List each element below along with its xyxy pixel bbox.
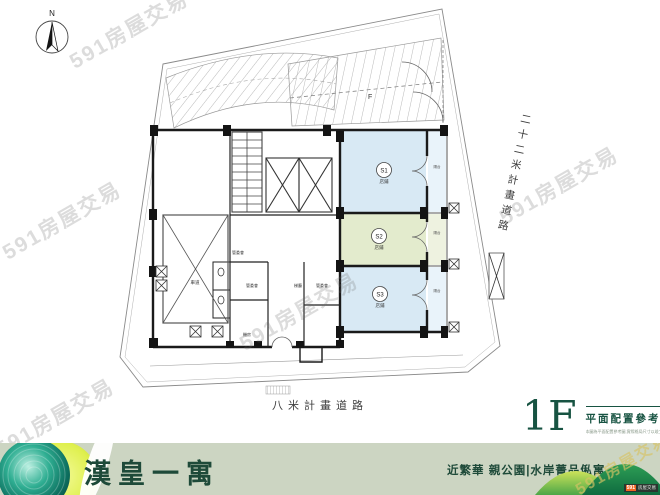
plan-title: 平面配置參考圖 <box>586 411 660 426</box>
room-label: 管委會 <box>246 282 258 288</box>
unit-s2-id: S2 <box>375 235 383 241</box>
balcony-s2 <box>428 214 446 265</box>
room-label: 管委會 <box>316 282 328 288</box>
equipment-boxes <box>156 203 504 337</box>
ramp-floor-marker: F <box>368 94 372 101</box>
compass-needle-icon <box>46 22 52 51</box>
driveway-label: 車道 <box>191 279 200 286</box>
balcony-label: 陽台 <box>434 164 442 169</box>
floorplan-page: 591房屋交易 591房屋交易 591房屋交易 591房屋交易 591房屋交易 … <box>0 0 660 495</box>
elevators <box>266 158 332 212</box>
entrance-steps <box>266 386 290 394</box>
badge-591: 591 房屋交易 <box>624 484 658 492</box>
floor-number: 1F <box>522 395 577 437</box>
title-block: 1F 平面配置參考圖 本圖為平面配置參考圖,實際格局尺寸以竣工圖及現場為準 <box>522 395 660 437</box>
unit-s1-type: 店鋪 <box>380 178 389 185</box>
room-label: 機房 <box>243 331 251 337</box>
road-label-bottom: 八米計畫道路 <box>240 397 400 413</box>
room-label: 梯廳 <box>294 282 302 288</box>
compass: N <box>36 9 68 53</box>
badge-591-chip: 591 <box>626 485 636 491</box>
straight-ramp: F <box>288 38 444 126</box>
balcony-label: 陽台 <box>434 230 442 235</box>
unit-s3-type: 店鋪 <box>376 302 385 309</box>
driveway-ramp <box>163 215 228 323</box>
badge-591-text: 房屋交易 <box>638 485 656 491</box>
balcony-label: 陽台 <box>434 288 442 293</box>
balcony-s1 <box>428 131 446 212</box>
unit-s2-type: 店鋪 <box>375 244 384 251</box>
title-rule <box>586 406 660 407</box>
plan-disclaimer: 本圖為平面配置參考圖,實際格局尺寸以竣工圖及現場為準 <box>586 429 660 435</box>
floorplan-drawing: N F <box>0 0 660 440</box>
stairs <box>232 132 262 212</box>
balcony-s3 <box>428 267 446 331</box>
unit-s3-id: S3 <box>376 293 384 299</box>
unit-fills <box>341 131 446 331</box>
room-label: 管委會 <box>232 249 244 255</box>
unit-s1-id: S1 <box>380 169 388 175</box>
footer-bar: 漢皇一寓 近繁華 親公園|水岸菁品俬寓 591房屋交易 591 房屋交易 <box>0 443 660 495</box>
entrance-doors <box>272 337 292 347</box>
project-name: 漢皇一寓 <box>84 452 220 491</box>
compass-north-label: N <box>49 9 55 18</box>
